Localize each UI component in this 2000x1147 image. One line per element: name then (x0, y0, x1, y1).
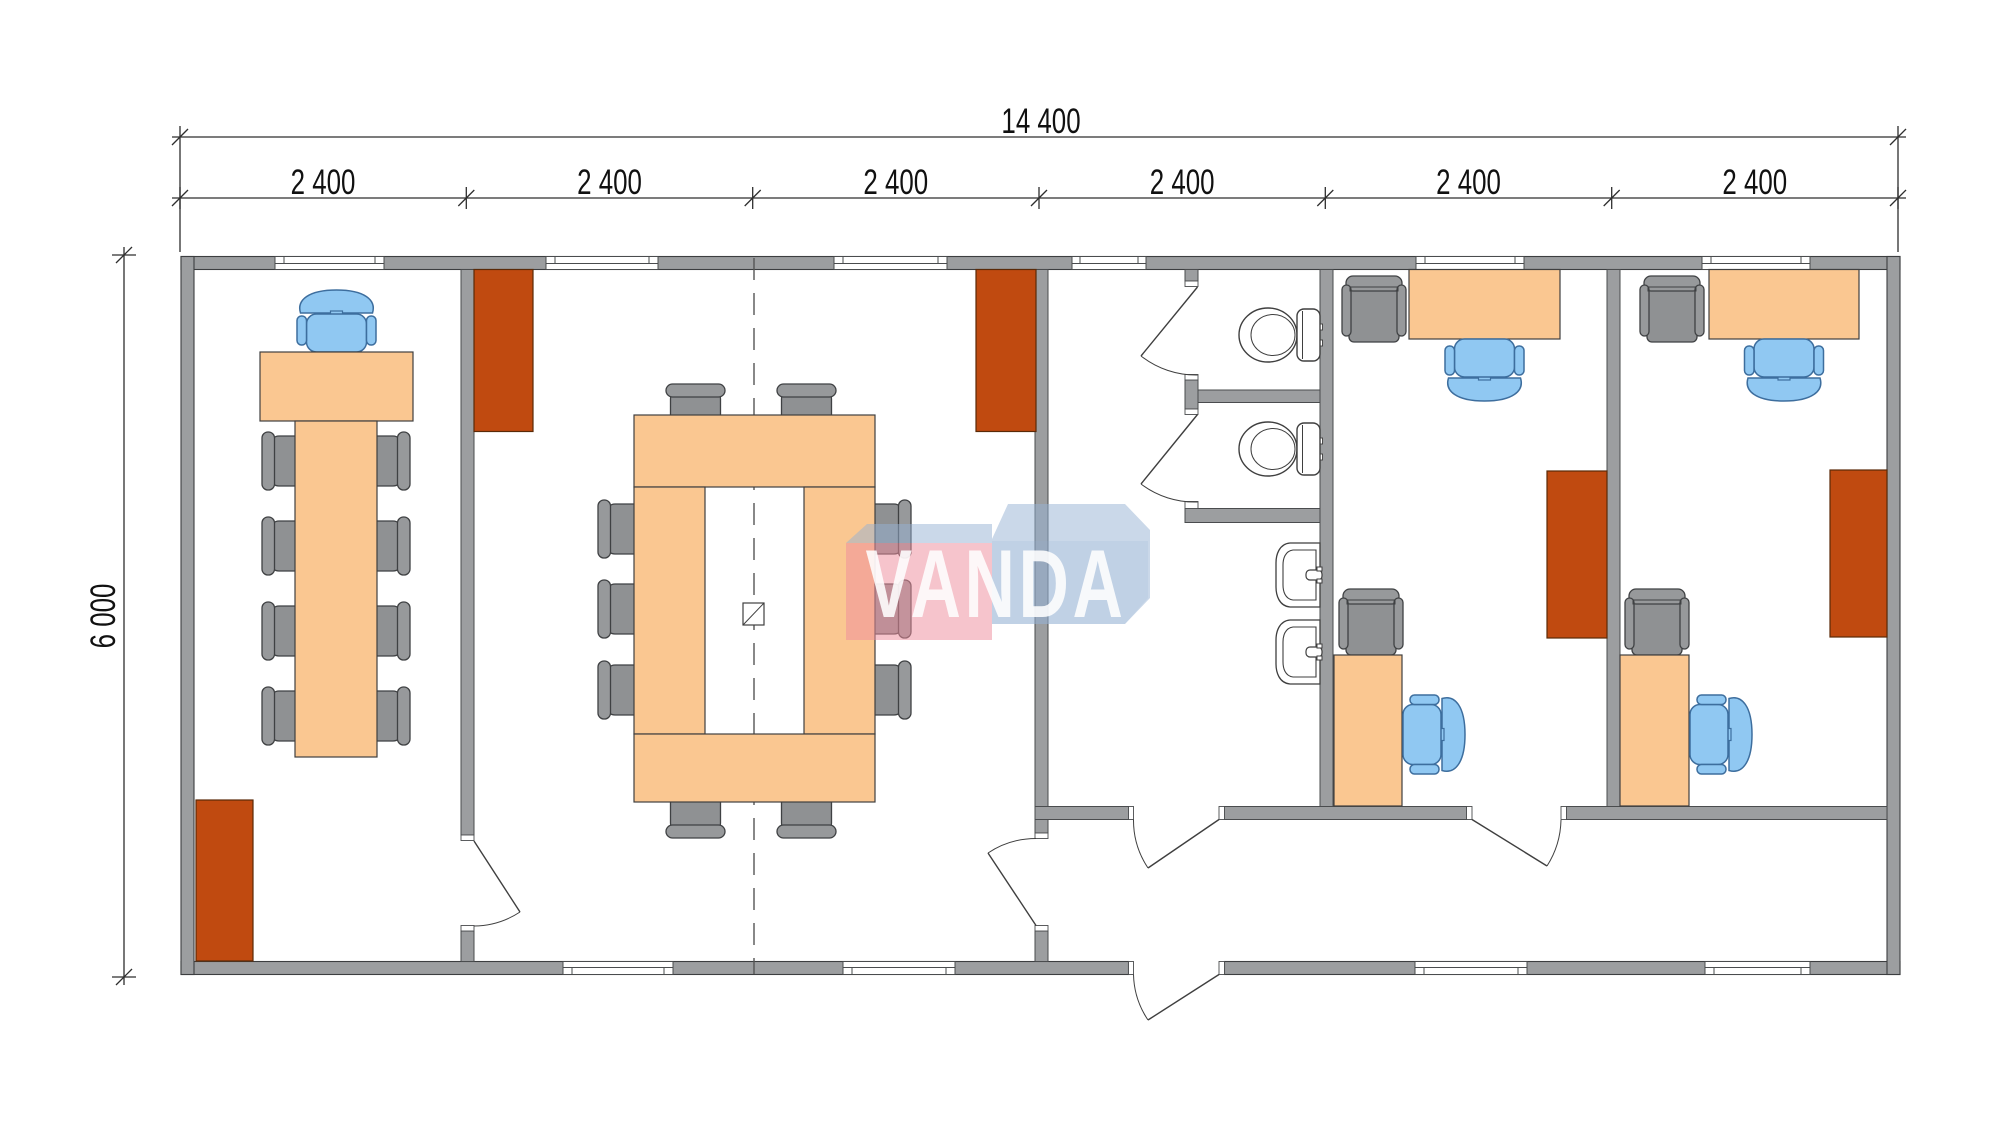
svg-text:2 400: 2 400 (1150, 162, 1215, 202)
svg-text:6 000: 6 000 (83, 584, 123, 649)
svg-text:2 400: 2 400 (863, 162, 928, 202)
svg-text:VANDA: VANDA (865, 529, 1126, 638)
svg-text:2 400: 2 400 (1722, 162, 1787, 202)
svg-text:2 400: 2 400 (577, 162, 642, 202)
svg-text:2 400: 2 400 (1436, 162, 1501, 202)
svg-text:14 400: 14 400 (1001, 101, 1080, 141)
svg-text:2 400: 2 400 (291, 162, 356, 202)
